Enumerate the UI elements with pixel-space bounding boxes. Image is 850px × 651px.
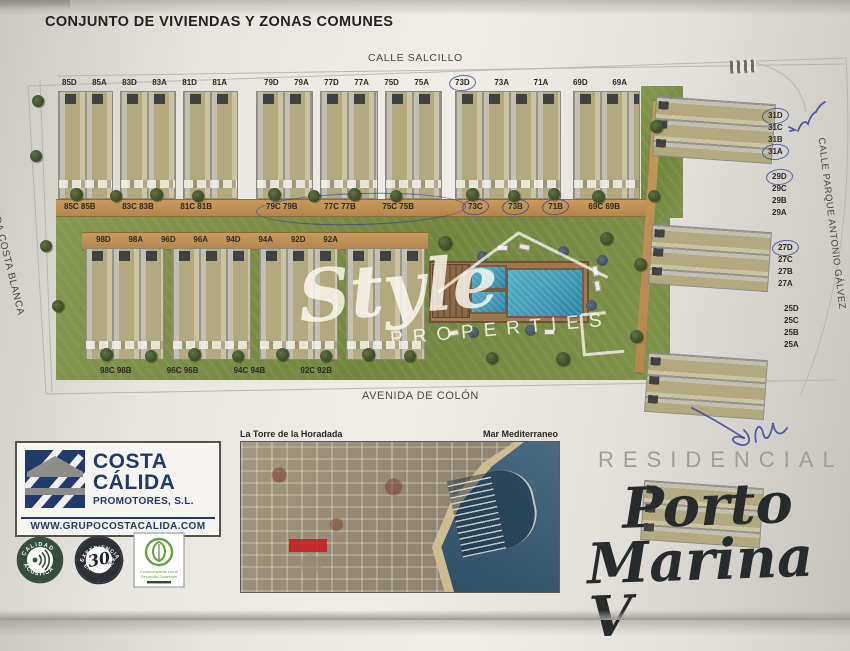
costa-calida-logo: COSTA CÁLIDA PROMOTORES, S.L. WWW.GRUPOC… bbox=[15, 441, 221, 537]
map-label-sea: Mar Mediterraneo bbox=[483, 429, 558, 439]
costa-calida-emblem-icon bbox=[25, 450, 85, 508]
map-red-marker bbox=[289, 539, 327, 552]
residencial-name-line2: Marina V bbox=[586, 530, 850, 645]
photo-bottom-shadow bbox=[0, 610, 850, 620]
residencial-kicker: RESIDENCIAL bbox=[598, 447, 848, 473]
logo-line3: PROMOTORES, S.L. bbox=[93, 496, 213, 507]
experience-30-badge-icon: EXPERIENCIA EXPERIENCE 30 Años Years bbox=[69, 530, 128, 589]
map-label-town: La Torre de la Horadada bbox=[240, 429, 342, 439]
logo-line1: COSTA bbox=[93, 451, 213, 472]
logo-text: COSTA CÁLIDA PROMOTORES, S.L. bbox=[93, 451, 213, 507]
acoustic-quality-badge-icon: CALIDAD ACÚSTICA bbox=[16, 536, 64, 584]
aerial-map bbox=[240, 441, 560, 593]
sustainability-badge-icon: Comprometidos con el Desarrollo Sostenib… bbox=[133, 532, 185, 588]
logo-line2: CÁLIDA bbox=[93, 472, 213, 493]
map-caption-row: La Torre de la Horadada Mar Mediterraneo bbox=[240, 429, 558, 439]
svg-text:Desarrollo Sostenible: Desarrollo Sostenible bbox=[141, 575, 177, 579]
svg-text:Comprometidos con el: Comprometidos con el bbox=[140, 570, 178, 574]
photo-corner-shadow bbox=[0, 0, 70, 9]
